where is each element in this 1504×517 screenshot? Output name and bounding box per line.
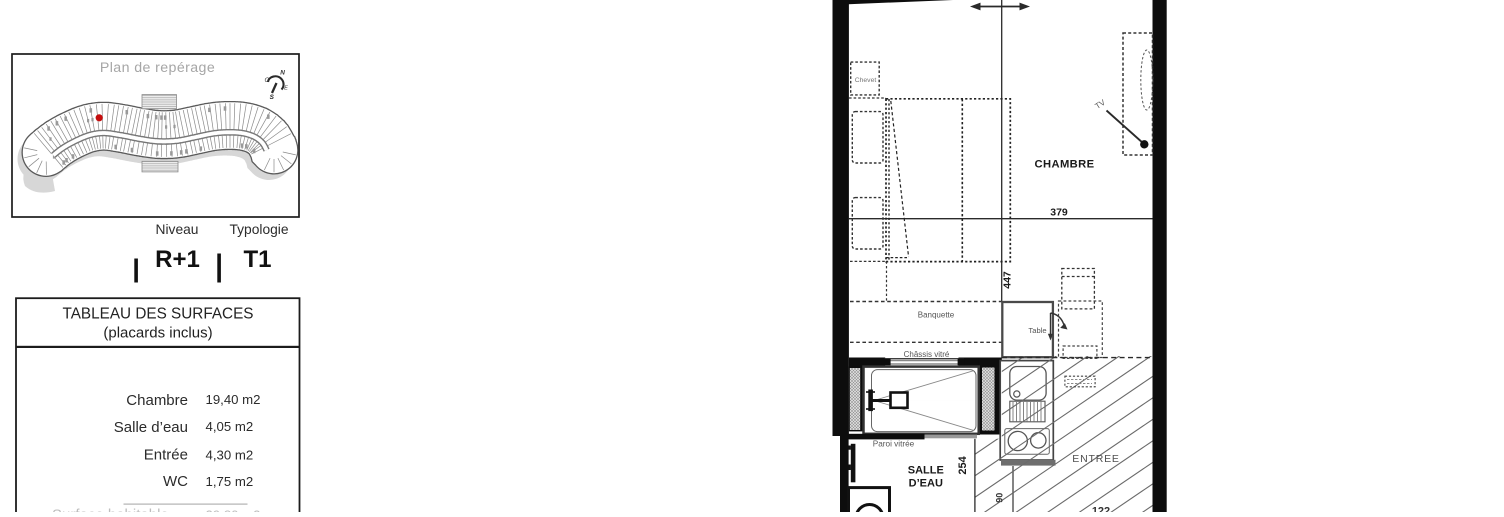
svg-text:4,05 m2: 4,05 m2 xyxy=(206,419,254,434)
svg-text:N: N xyxy=(280,70,285,77)
svg-text:447: 447 xyxy=(1001,271,1013,289)
svg-text:SALLE: SALLE xyxy=(908,464,944,476)
svg-text:29,80 m2: 29,80 m2 xyxy=(206,508,261,512)
svg-text:TABLEAU DES SURFACES: TABLEAU DES SURFACES xyxy=(63,306,254,323)
svg-text:D’EAU: D’EAU xyxy=(909,478,943,490)
svg-text:Plan de repérage: Plan de repérage xyxy=(100,60,215,76)
svg-text:Châssis vitré: Châssis vitré xyxy=(904,350,950,359)
svg-text:Salle d’eau: Salle d’eau xyxy=(114,419,188,436)
svg-text:1,75 m2: 1,75 m2 xyxy=(206,474,254,489)
svg-text:O: O xyxy=(265,77,270,84)
svg-text:Banquette: Banquette xyxy=(918,311,955,320)
svg-text:Chambre: Chambre xyxy=(126,392,188,409)
svg-text:R+1: R+1 xyxy=(155,246,200,273)
svg-text:WC: WC xyxy=(163,473,188,490)
svg-text:Paroi vitrée: Paroi vitrée xyxy=(873,439,915,448)
svg-text:379: 379 xyxy=(1050,207,1068,219)
svg-text:254: 254 xyxy=(957,455,969,474)
svg-text:ENTREE: ENTREE xyxy=(1072,453,1119,465)
svg-text:(placards inclus): (placards inclus) xyxy=(103,325,212,342)
svg-text:Entrée: Entrée xyxy=(144,447,188,464)
svg-text:122: 122 xyxy=(1092,506,1110,513)
svg-text:19,40 m2: 19,40 m2 xyxy=(206,392,261,407)
svg-text:4,30 m2: 4,30 m2 xyxy=(206,448,254,463)
svg-text:S: S xyxy=(270,94,275,101)
svg-text:Chevet: Chevet xyxy=(855,77,877,84)
svg-text:E: E xyxy=(284,86,288,92)
svg-text:Typologie: Typologie xyxy=(229,222,288,237)
svg-text:CHAMBRE: CHAMBRE xyxy=(1035,159,1095,171)
svg-text:Table: Table xyxy=(1028,326,1046,335)
svg-text:Niveau: Niveau xyxy=(156,222,199,237)
svg-text:Surface habitable: Surface habitable xyxy=(52,507,169,512)
svg-text:90: 90 xyxy=(995,493,1005,503)
svg-text:T1: T1 xyxy=(243,246,271,273)
